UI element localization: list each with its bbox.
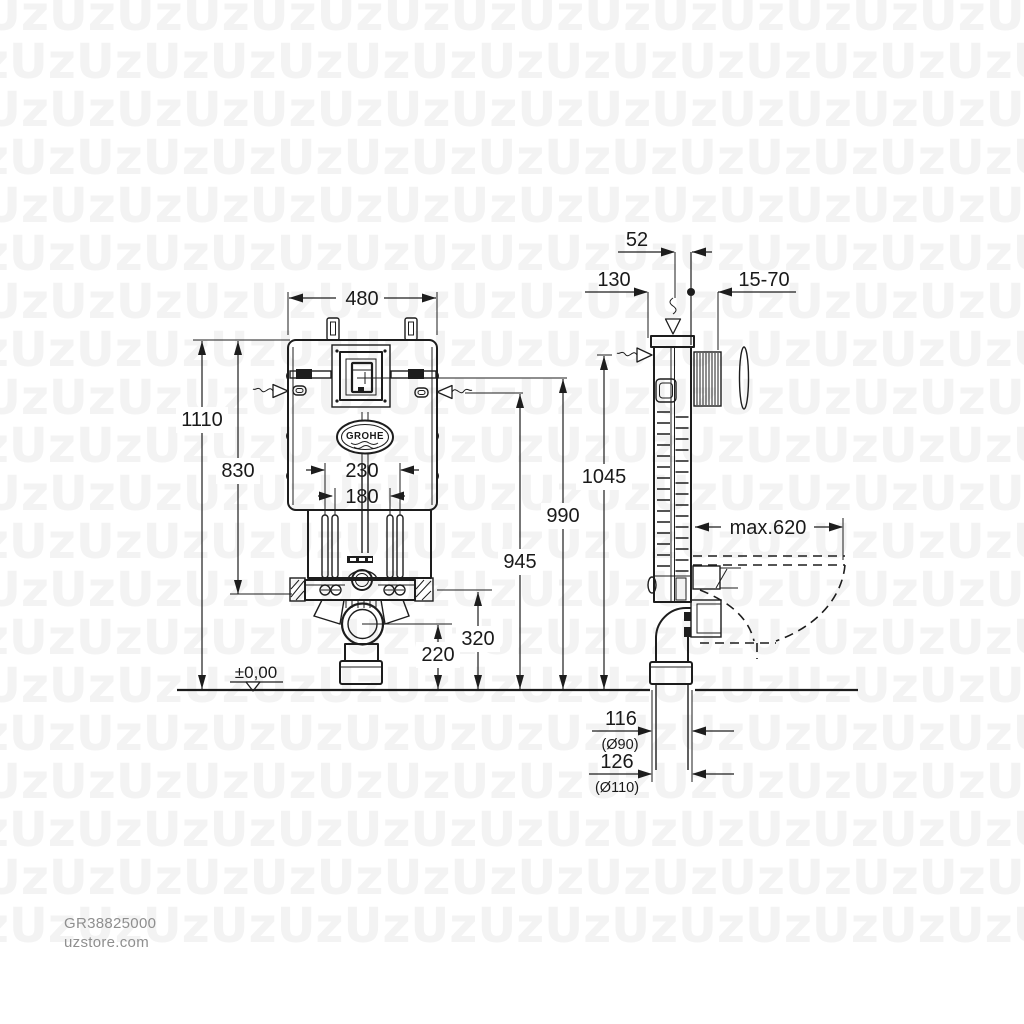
cistern-top-cap bbox=[651, 336, 694, 347]
drain-dimensions: 116 (Ø90) 126 (Ø110) bbox=[589, 690, 734, 796]
dim-bracket-height-label: 320 bbox=[461, 628, 494, 650]
fixing-bracket bbox=[290, 571, 433, 601]
dim-bowl-depth-label: max.620 bbox=[730, 517, 807, 539]
floor-level-marker: ±0,00 bbox=[230, 663, 283, 691]
floor-level-label: ±0,00 bbox=[235, 663, 277, 682]
dim-fixing-height-label: 945 bbox=[503, 551, 536, 573]
technical-drawing-page: UzUzUzUzUzUzUzUzUzUzUzUzUzUzUzUzUzUzUzUz… bbox=[0, 0, 1024, 1024]
dim-rod-inner-label: 180 bbox=[345, 486, 378, 508]
cover-plate-disc bbox=[740, 347, 749, 409]
dim-drain110-dia-label: (Ø110) bbox=[595, 780, 639, 796]
wall-fixing-arrow-right-icon bbox=[437, 386, 472, 399]
dim-total-height-label: 1110 bbox=[181, 409, 223, 431]
dim-rod-outer-label: 230 bbox=[345, 460, 378, 482]
mounting-tabs bbox=[327, 318, 417, 340]
grohe-logo: GROHE bbox=[337, 412, 393, 465]
bowl-connectors bbox=[684, 566, 741, 637]
dim-outlet-height-label: 220 bbox=[421, 644, 454, 666]
wc-bowl-dashed-outline bbox=[693, 556, 845, 659]
side-view: 52 130 15-70 bbox=[585, 229, 845, 796]
cistern-lower-front bbox=[308, 510, 431, 578]
dim-drain90-label: 116 bbox=[605, 708, 637, 730]
footer: GR38825000 uzstore.com bbox=[64, 914, 156, 952]
flush-thread-connector bbox=[694, 352, 721, 406]
front-dimensions: 480 1110 830 230 180 bbox=[176, 288, 652, 691]
dim-width-label: 480 bbox=[345, 288, 378, 310]
grohe-logo-text: GROHE bbox=[346, 431, 384, 442]
dim-finish-range-label: 15-70 bbox=[738, 269, 789, 291]
dim-bowl-depth: max.620 bbox=[695, 517, 843, 560]
water-supply-arrow-icon bbox=[666, 298, 681, 334]
installation-drawing: GROHE bbox=[0, 0, 1024, 1024]
flush-button-notch bbox=[358, 387, 364, 392]
website: uzstore.com bbox=[64, 933, 156, 952]
flush-actuator bbox=[290, 345, 567, 407]
frame-rungs bbox=[657, 412, 689, 571]
wall-fixing-arrow-left-icon bbox=[253, 385, 288, 398]
supply-level-arrow-icon bbox=[617, 348, 652, 362]
dim-flush-center-label: 990 bbox=[546, 505, 579, 527]
dim-supply-height-label: 1045 bbox=[582, 466, 627, 488]
dim-supply-offset-label: 52 bbox=[626, 229, 648, 251]
dim-frame-height-label: 830 bbox=[221, 460, 254, 482]
product-code: GR38825000 bbox=[64, 914, 156, 933]
dim-drain110-label: 126 bbox=[600, 751, 633, 773]
wall-reference-dot bbox=[687, 288, 695, 296]
dim-front-offset-label: 130 bbox=[597, 269, 630, 291]
outlet-bend bbox=[314, 600, 409, 684]
